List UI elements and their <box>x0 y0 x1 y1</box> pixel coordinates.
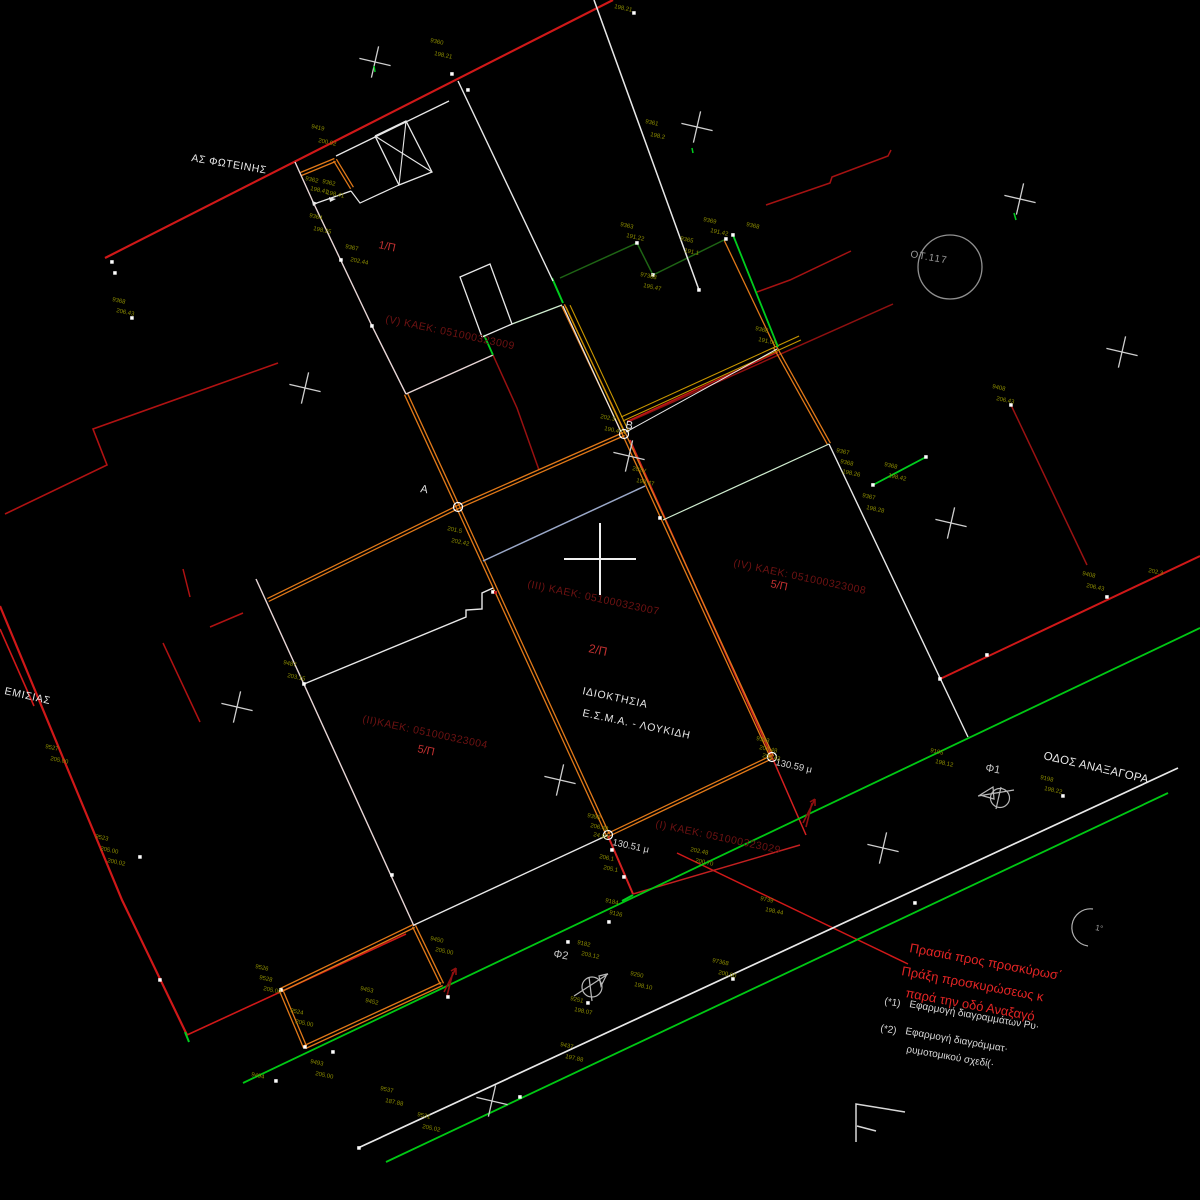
svg-text:Φ1: Φ1 <box>984 762 1001 776</box>
svg-text:1°: 1° <box>1095 923 1104 933</box>
svg-text:Φ2: Φ2 <box>552 948 569 962</box>
